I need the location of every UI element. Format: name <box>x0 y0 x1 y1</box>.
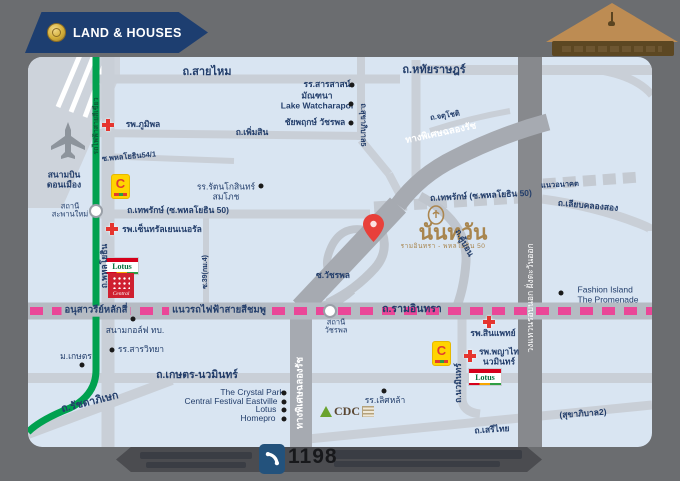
land-and-houses-banner: LAND & HOUSES <box>25 12 208 53</box>
road-khubon <box>420 196 466 311</box>
road-nawamin <box>462 311 480 414</box>
map-screenshot: C C Lotus Lotus Central CDC นันทวัน รามอ… <box>0 0 680 481</box>
road-network <box>28 57 652 447</box>
road-future-alignment <box>543 177 640 184</box>
footer-text-right <box>334 450 522 459</box>
map-canvas <box>28 57 652 447</box>
road-liap-khlong-song <box>542 199 652 231</box>
lamp-icon <box>608 12 615 26</box>
road-chatuchot <box>430 111 510 131</box>
road-ratchadaphisek <box>28 380 172 434</box>
footer-text-right <box>334 461 500 467</box>
road-permsin <box>90 133 366 136</box>
land-and-houses-coin-icon <box>47 23 66 42</box>
road-soi54-1 <box>102 156 234 161</box>
phone-badge <box>259 444 285 474</box>
footer-text-left <box>146 462 246 468</box>
project-roof-logo-band <box>552 41 674 56</box>
land-and-houses-logo-text: LAND & HOUSES <box>73 26 182 40</box>
footer-text-left <box>140 452 252 459</box>
call-center-number: 1198 <box>288 445 338 469</box>
phone-icon <box>263 450 281 468</box>
